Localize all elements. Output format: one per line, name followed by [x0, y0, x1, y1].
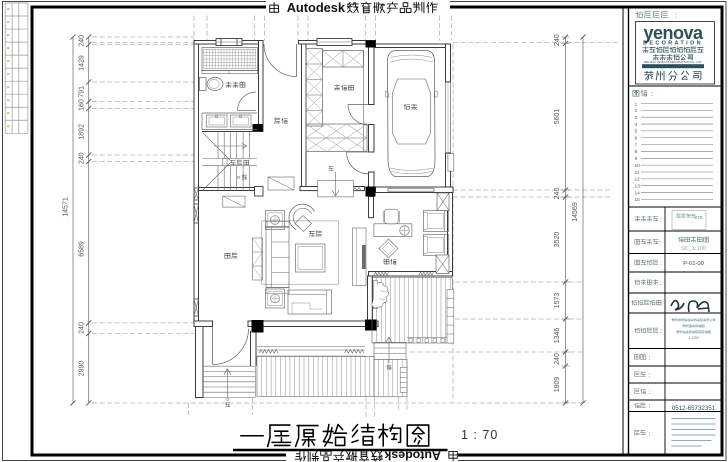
svg-text:4: 4	[635, 122, 638, 128]
svg-text:3: 3	[635, 115, 638, 121]
svg-text:10: 10	[635, 163, 641, 169]
svg-text:5: 5	[635, 129, 638, 135]
svg-text:Autodesk: Autodesk	[287, 0, 346, 15]
svg-text:14: 14	[635, 190, 641, 196]
svg-text:160: 160	[79, 99, 86, 111]
svg-text:14569: 14569	[572, 202, 579, 222]
svg-text:240: 240	[79, 152, 86, 164]
svg-text:3520: 3520	[554, 232, 561, 248]
svg-text:240: 240	[554, 353, 561, 365]
svg-text:1346: 1346	[554, 328, 561, 344]
svg-text:2: 2	[635, 108, 638, 114]
svg-text:240: 240	[554, 188, 561, 200]
svg-text:DECORATION: DECORATION	[643, 41, 703, 47]
svg-text:1-1206: 1-1206	[688, 336, 699, 340]
svg-text:SC_1:100: SC_1:100	[681, 246, 706, 252]
svg-text:1573: 1573	[554, 293, 561, 309]
svg-text:13: 13	[635, 184, 641, 190]
svg-text:11: 11	[635, 170, 640, 176]
svg-text:1809: 1809	[554, 377, 561, 393]
svg-text::: :	[651, 89, 653, 98]
svg-text:15: 15	[635, 197, 641, 203]
svg-text:1 : 70: 1 : 70	[461, 428, 498, 442]
svg-text:240: 240	[554, 34, 561, 46]
svg-text:2990: 2990	[79, 361, 86, 377]
svg-text:14571: 14571	[63, 197, 70, 217]
svg-text:5601: 5601	[554, 109, 561, 125]
svg-text:240: 240	[79, 35, 86, 47]
svg-text:270: 270	[695, 215, 703, 220]
svg-text:1892: 1892	[79, 124, 86, 140]
svg-text:BEIJING YENOVO DECORATION CO.,: BEIJING YENOVO DECORATION CO., LTD	[644, 60, 701, 64]
svg-text:6589: 6589	[79, 241, 86, 257]
svg-text:7: 7	[635, 142, 638, 148]
svg-text:8: 8	[635, 149, 638, 155]
svg-text:P-01-00: P-01-00	[683, 261, 704, 267]
svg-text:791: 791	[79, 86, 86, 98]
svg-text:9: 9	[635, 156, 638, 162]
svg-text:1429: 1429	[79, 55, 86, 71]
svg-text:1: 1	[635, 101, 638, 107]
svg-text::: :	[675, 11, 677, 20]
svg-text:6: 6	[635, 136, 638, 142]
svg-text:12: 12	[635, 177, 641, 183]
svg-text:240: 240	[79, 322, 86, 334]
svg-text:0512-65732351: 0512-65732351	[672, 405, 716, 412]
